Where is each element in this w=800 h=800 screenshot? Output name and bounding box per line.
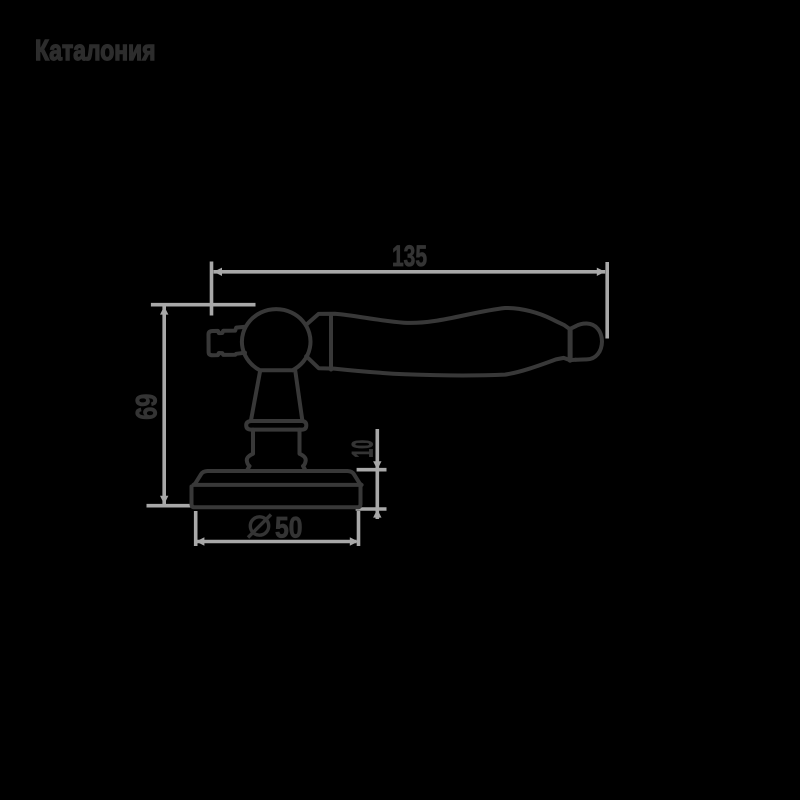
svg-text:50: 50 — [275, 512, 303, 545]
svg-text:135: 135 — [392, 240, 427, 273]
svg-text:10: 10 — [347, 440, 380, 458]
svg-text:Каталония: Каталония — [35, 35, 156, 67]
svg-text:69: 69 — [131, 394, 164, 420]
